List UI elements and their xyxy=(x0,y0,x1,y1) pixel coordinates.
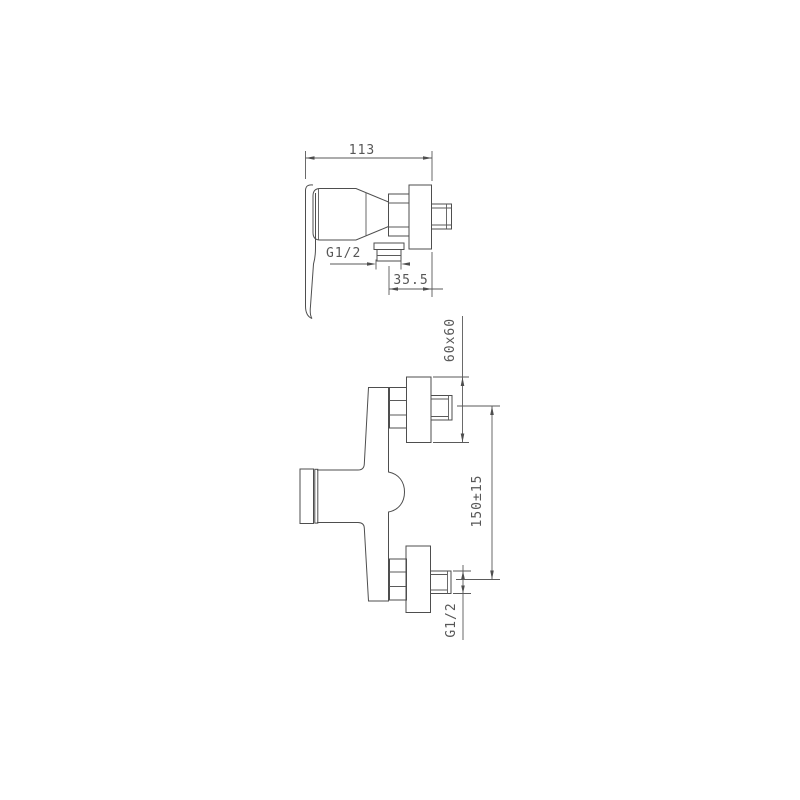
dim-35-5: 35.5 xyxy=(389,252,443,297)
dim-150-15-label: 150±15 xyxy=(470,475,485,528)
dim-g12-inlet-label: G1/2 xyxy=(444,602,459,637)
mixer-body-front xyxy=(317,388,405,602)
drawing-svg: 113 G1/2 35.5 xyxy=(0,0,800,800)
top-inlet xyxy=(390,377,453,443)
dim-113: 113 xyxy=(306,143,433,181)
dim-35-5-label: 35.5 xyxy=(393,273,428,288)
dim-60x60-label: 60x60 xyxy=(443,318,458,362)
wall-flange xyxy=(409,185,432,249)
hose-outlet xyxy=(374,243,404,261)
dim-g12-outlet-label: G1/2 xyxy=(326,246,361,261)
front-view: 60x60 150±15 G1/2 xyxy=(300,316,500,640)
technical-drawing: 113 G1/2 35.5 xyxy=(0,0,800,800)
mixer-body xyxy=(313,189,389,241)
inlet-nipple xyxy=(432,204,452,229)
handle-lever xyxy=(306,185,316,319)
side-view: 113 G1/2 35.5 xyxy=(306,143,452,319)
dim-60x60: 60x60 xyxy=(433,316,469,443)
bottom-inlet xyxy=(390,546,452,613)
dim-113-label: 113 xyxy=(349,143,375,158)
dim-inlet-thread: G1/2 xyxy=(444,565,471,640)
handle-end xyxy=(300,469,318,524)
hex-nut xyxy=(389,194,410,236)
